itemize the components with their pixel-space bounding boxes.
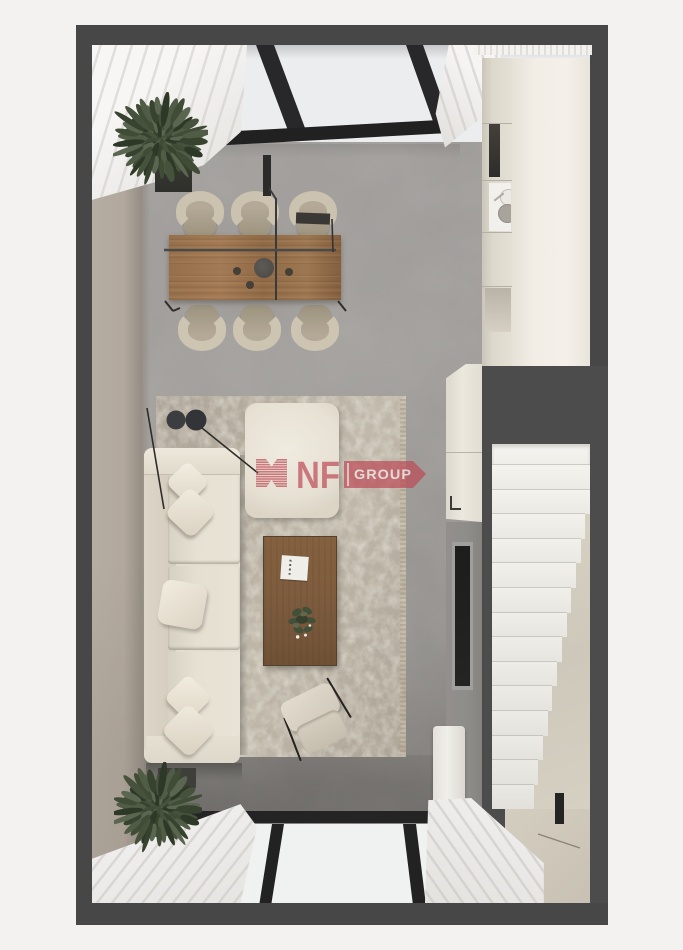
svg-text:NF: NF — [296, 455, 340, 497]
svg-text:GROUP: GROUP — [354, 466, 412, 482]
